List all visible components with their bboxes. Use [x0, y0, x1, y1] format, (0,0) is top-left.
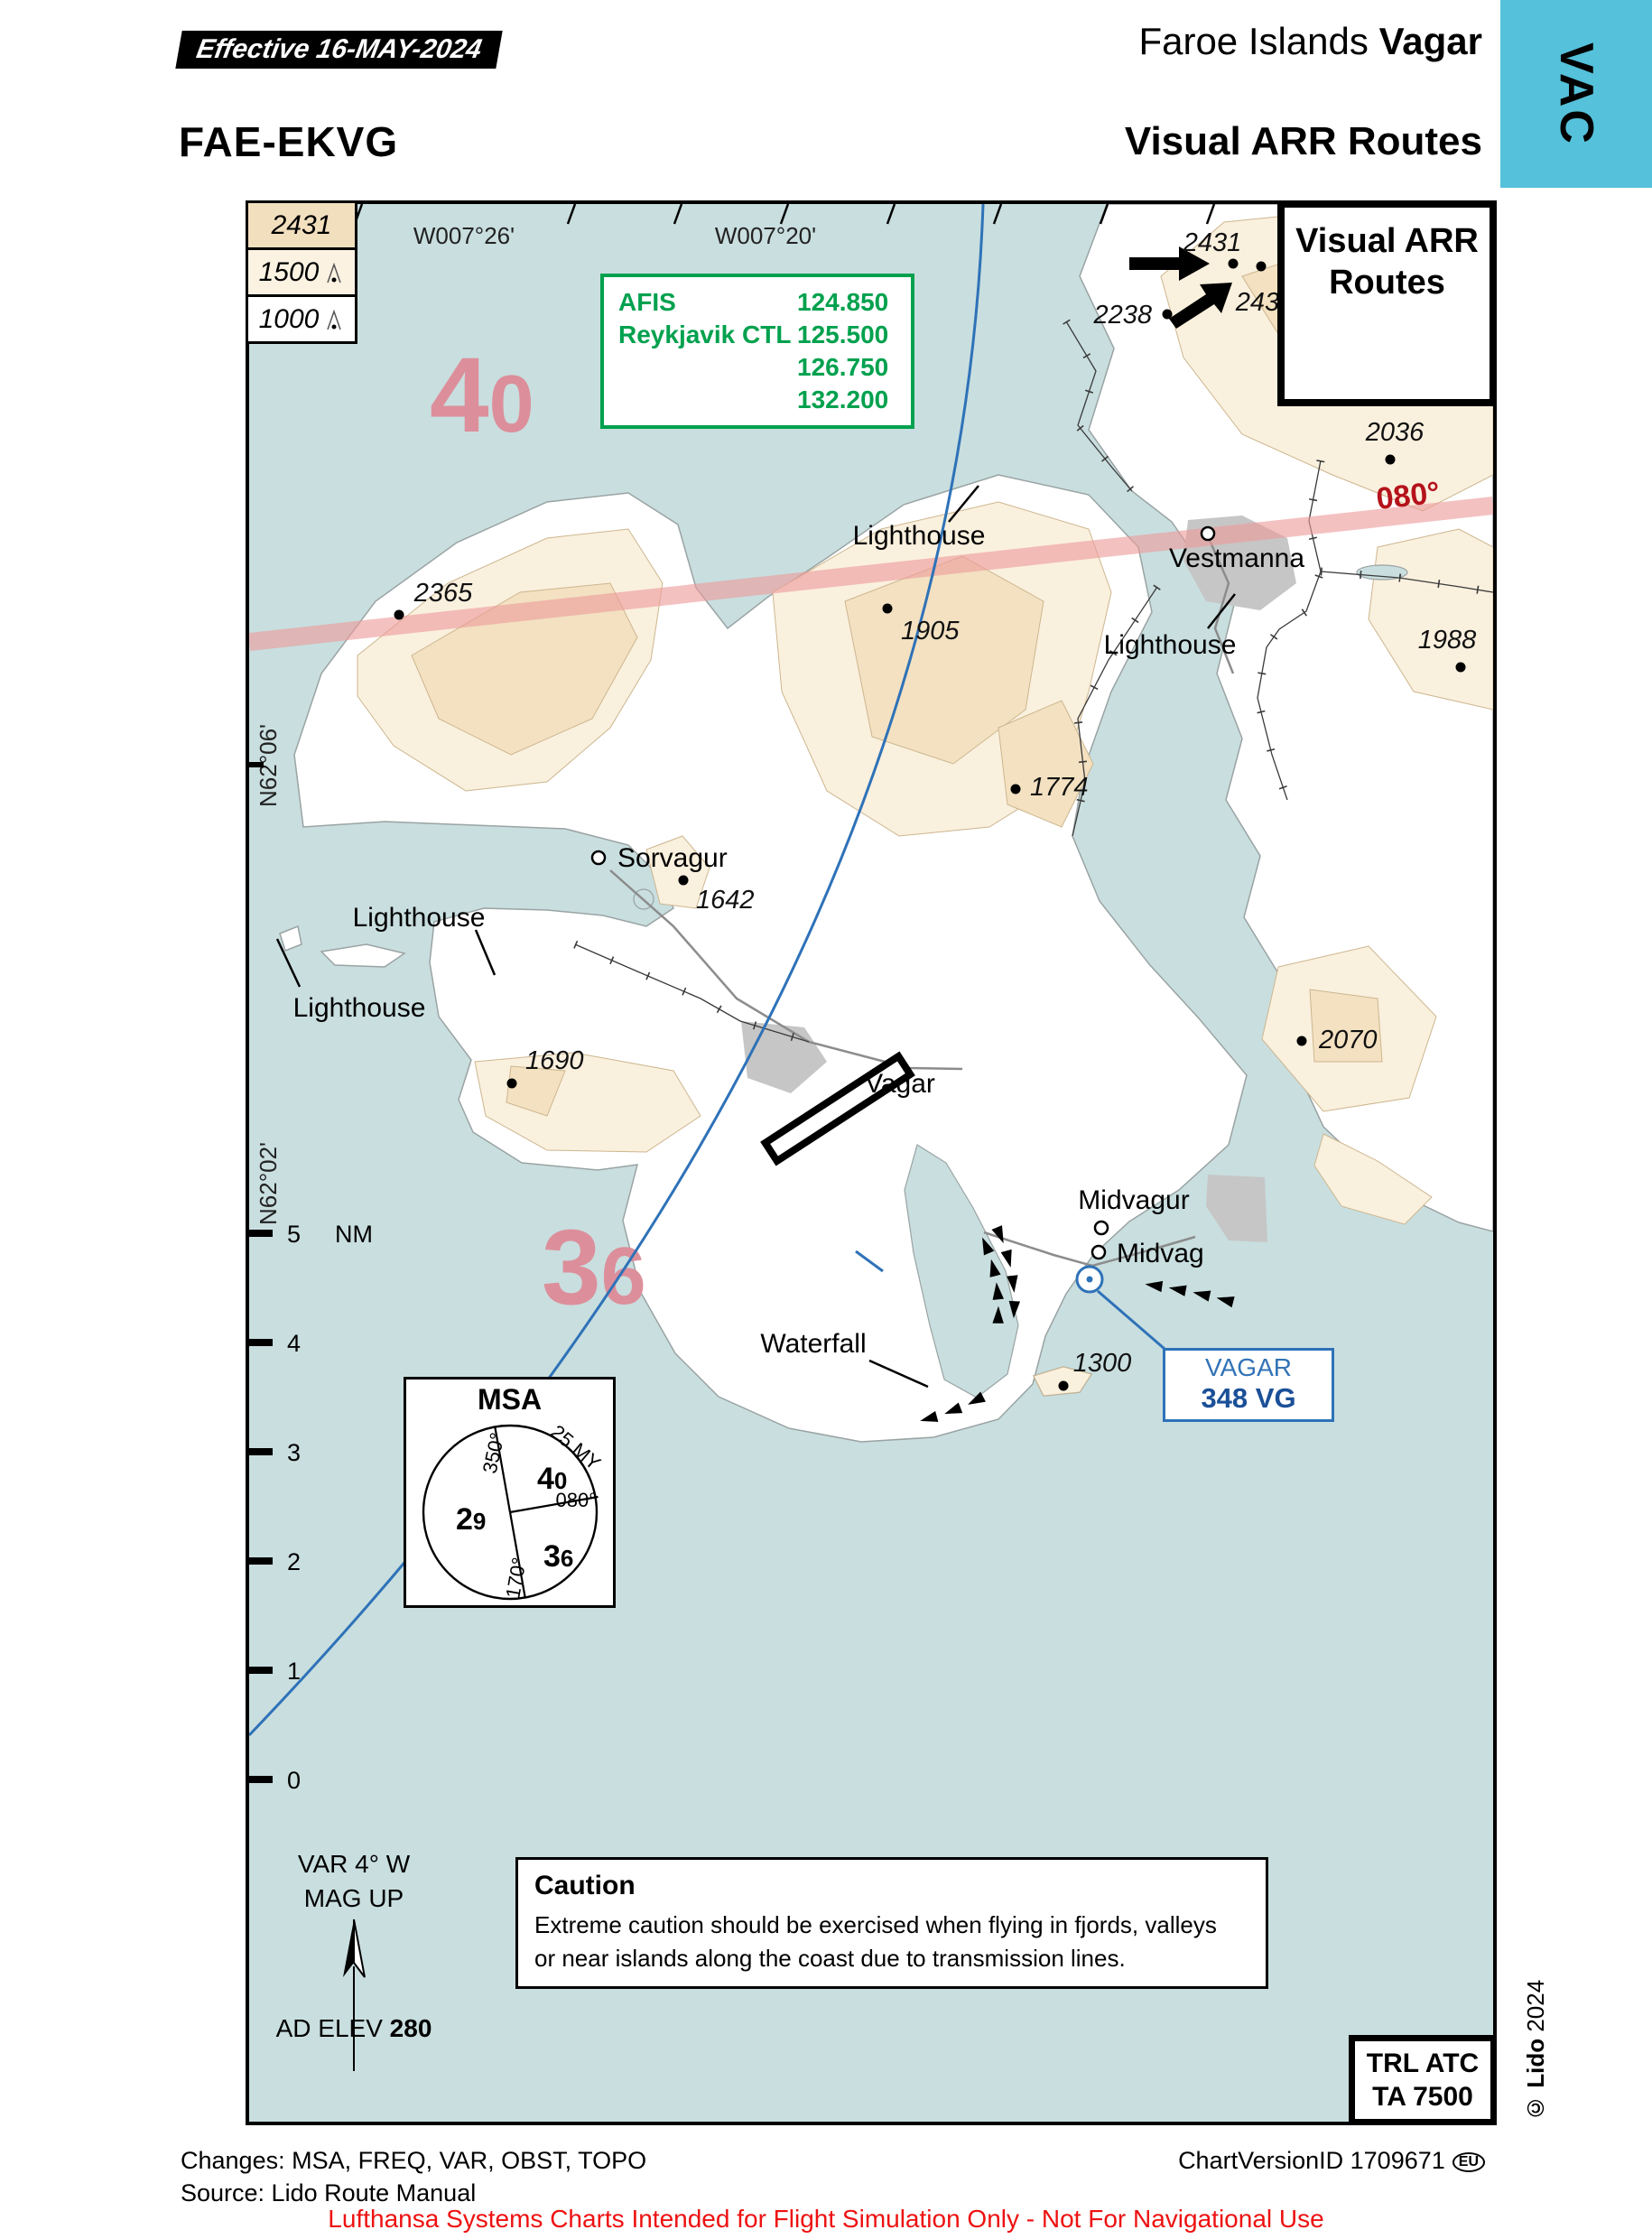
- msa-title: MSA: [406, 1383, 613, 1417]
- region-name: Faroe Islands: [1138, 20, 1378, 62]
- svg-text:Midvag: Midvag: [1117, 1239, 1204, 1268]
- north-arrow-icon: [343, 1919, 365, 2071]
- ctl-label: Reykjavik CTL: [618, 319, 797, 351]
- svg-text:40: 40: [537, 1462, 567, 1496]
- islet-lighthouse-1: [280, 926, 302, 951]
- svg-text:N62°02': N62°02': [255, 1142, 282, 1225]
- svg-text:Lighthouse: Lighthouse: [293, 993, 426, 1023]
- svg-text:Midvagur: Midvagur: [1078, 1185, 1189, 1215]
- svg-text:350°: 350°: [478, 1431, 509, 1476]
- chart-code: FAE-EKVG: [179, 117, 398, 166]
- msa-box: MSA 350° 25 MY 080° 170° 40 29 36: [404, 1377, 616, 1608]
- map-title-box: Visual ARR Routes: [1277, 200, 1497, 406]
- svg-text:36: 36: [543, 1539, 573, 1574]
- svg-text:2431: 2431: [1183, 228, 1242, 257]
- islet-lighthouse-2: [321, 944, 404, 967]
- svg-text:2036: 2036: [1365, 418, 1425, 447]
- chart-page: VAC Effective 16-MAY-2024 Faroe Islands …: [0, 0, 1652, 2239]
- svg-text:AD ELEV 280: AD ELEV 280: [276, 2014, 432, 2042]
- svg-text:2238: 2238: [1092, 301, 1152, 330]
- peak-icon: [324, 308, 344, 331]
- svg-text:Lighthouse: Lighthouse: [853, 521, 986, 551]
- afis-frequency: 124.850: [797, 286, 888, 319]
- svg-text:1: 1: [287, 1658, 301, 1685]
- svg-text:1774: 1774: [1030, 773, 1089, 802]
- scale-bar: 5 NM 4 3 2 1 0: [249, 1221, 373, 1794]
- ctl-frequency: 125.500: [797, 319, 888, 351]
- frequency-box: AFIS124.850 Reykjavik CTL125.500 126.750…: [600, 274, 914, 429]
- effective-date: Effective 16-MAY-2024: [194, 34, 484, 64]
- footer-version: ChartVersionID 1709671EU: [1178, 2147, 1485, 2175]
- airport-label: Vagar: [865, 1069, 935, 1099]
- svg-text:3: 3: [287, 1439, 301, 1466]
- svg-text:NM: NM: [335, 1221, 373, 1248]
- afis-label: AFIS: [618, 286, 797, 319]
- footer-changes: Changes: MSA, FREQ, VAR, OBST, TOPO: [181, 2147, 646, 2175]
- vor-ident: 348 VG: [1165, 1382, 1332, 1415]
- svg-text:VAR 4° W: VAR 4° W: [298, 1850, 411, 1878]
- tab-label: VAC: [1549, 42, 1603, 146]
- chart-title: Visual ARR Routes: [1125, 119, 1482, 164]
- map-panel[interactable]: 40 36 080° ► ► ► ► ►: [246, 200, 1497, 2125]
- peak-icon: [324, 261, 344, 284]
- region-title: Faroe Islands Vagar: [1138, 20, 1482, 63]
- vor-name: VAGAR: [1165, 1353, 1332, 1382]
- trl-ta-box: TRL ATC TA 7500: [1349, 2035, 1497, 2125]
- elevation-legend: 2431 1500 1000: [246, 200, 357, 344]
- caution-box: Caution Extreme caution should be exerci…: [515, 1857, 1268, 1989]
- eu-badge: EU: [1452, 2152, 1485, 2172]
- svg-text:Lighthouse: Lighthouse: [1104, 630, 1237, 660]
- svg-text:1690: 1690: [525, 1046, 584, 1075]
- city-name: Vagar: [1379, 20, 1482, 62]
- svg-text:► ► ► ►: ► ► ► ►: [1142, 1273, 1236, 1316]
- vor-info-box: VAGAR 348 VG ···− −−·: [1163, 1348, 1334, 1422]
- svg-text:Waterfall: Waterfall: [760, 1329, 866, 1359]
- max-elevation: 2431: [272, 210, 332, 241]
- variation-note: VAR 4° W MAG UP AD ELEV 280: [276, 1850, 432, 2071]
- msa-rose: 350° 25 MY 080° 170° 40 29 36: [406, 1417, 613, 1606]
- vor-morse: ···− −−·: [1165, 1415, 1332, 1422]
- footer-disclaimer: Lufthansa Systems Charts Intended for Fl…: [0, 2205, 1652, 2234]
- svg-text:1905: 1905: [901, 617, 960, 646]
- footer-source: Source: Lido Route Manual: [181, 2179, 476, 2207]
- svg-text:2365: 2365: [413, 579, 473, 608]
- caution-title: Caution: [534, 1871, 1249, 1901]
- chart-type-tab[interactable]: VAC: [1500, 0, 1652, 188]
- svg-text:W007°26': W007°26': [413, 222, 515, 249]
- svg-text:29: 29: [456, 1502, 486, 1537]
- svg-text:170°: 170°: [501, 1556, 531, 1600]
- track-bearing-label: 080°: [1375, 476, 1442, 516]
- svg-text:4: 4: [287, 1330, 301, 1357]
- svg-text:2070: 2070: [1318, 1026, 1378, 1054]
- svg-text:W007°20': W007°20': [715, 222, 816, 249]
- svg-text:Vestmanna: Vestmanna: [1169, 543, 1304, 573]
- copyright: © Lido 2024: [1522, 1948, 1550, 2122]
- svg-text:5: 5: [287, 1221, 301, 1248]
- svg-text:0: 0: [287, 1767, 301, 1794]
- effective-date-badge: Effective 16-MAY-2024: [175, 31, 503, 69]
- svg-text:1642: 1642: [696, 886, 755, 915]
- svg-text:MAG UP: MAG UP: [304, 1884, 404, 1912]
- svg-text:1300: 1300: [1073, 1349, 1132, 1378]
- svg-text:Sorvagur: Sorvagur: [617, 843, 728, 873]
- svg-text:1988: 1988: [1418, 626, 1477, 655]
- map-canvas: 40 36 080° ► ► ► ► ►: [249, 204, 1493, 2122]
- svg-text:40: 40: [430, 336, 534, 455]
- svg-text:2: 2: [287, 1548, 301, 1575]
- svg-text:Lighthouse: Lighthouse: [353, 903, 486, 933]
